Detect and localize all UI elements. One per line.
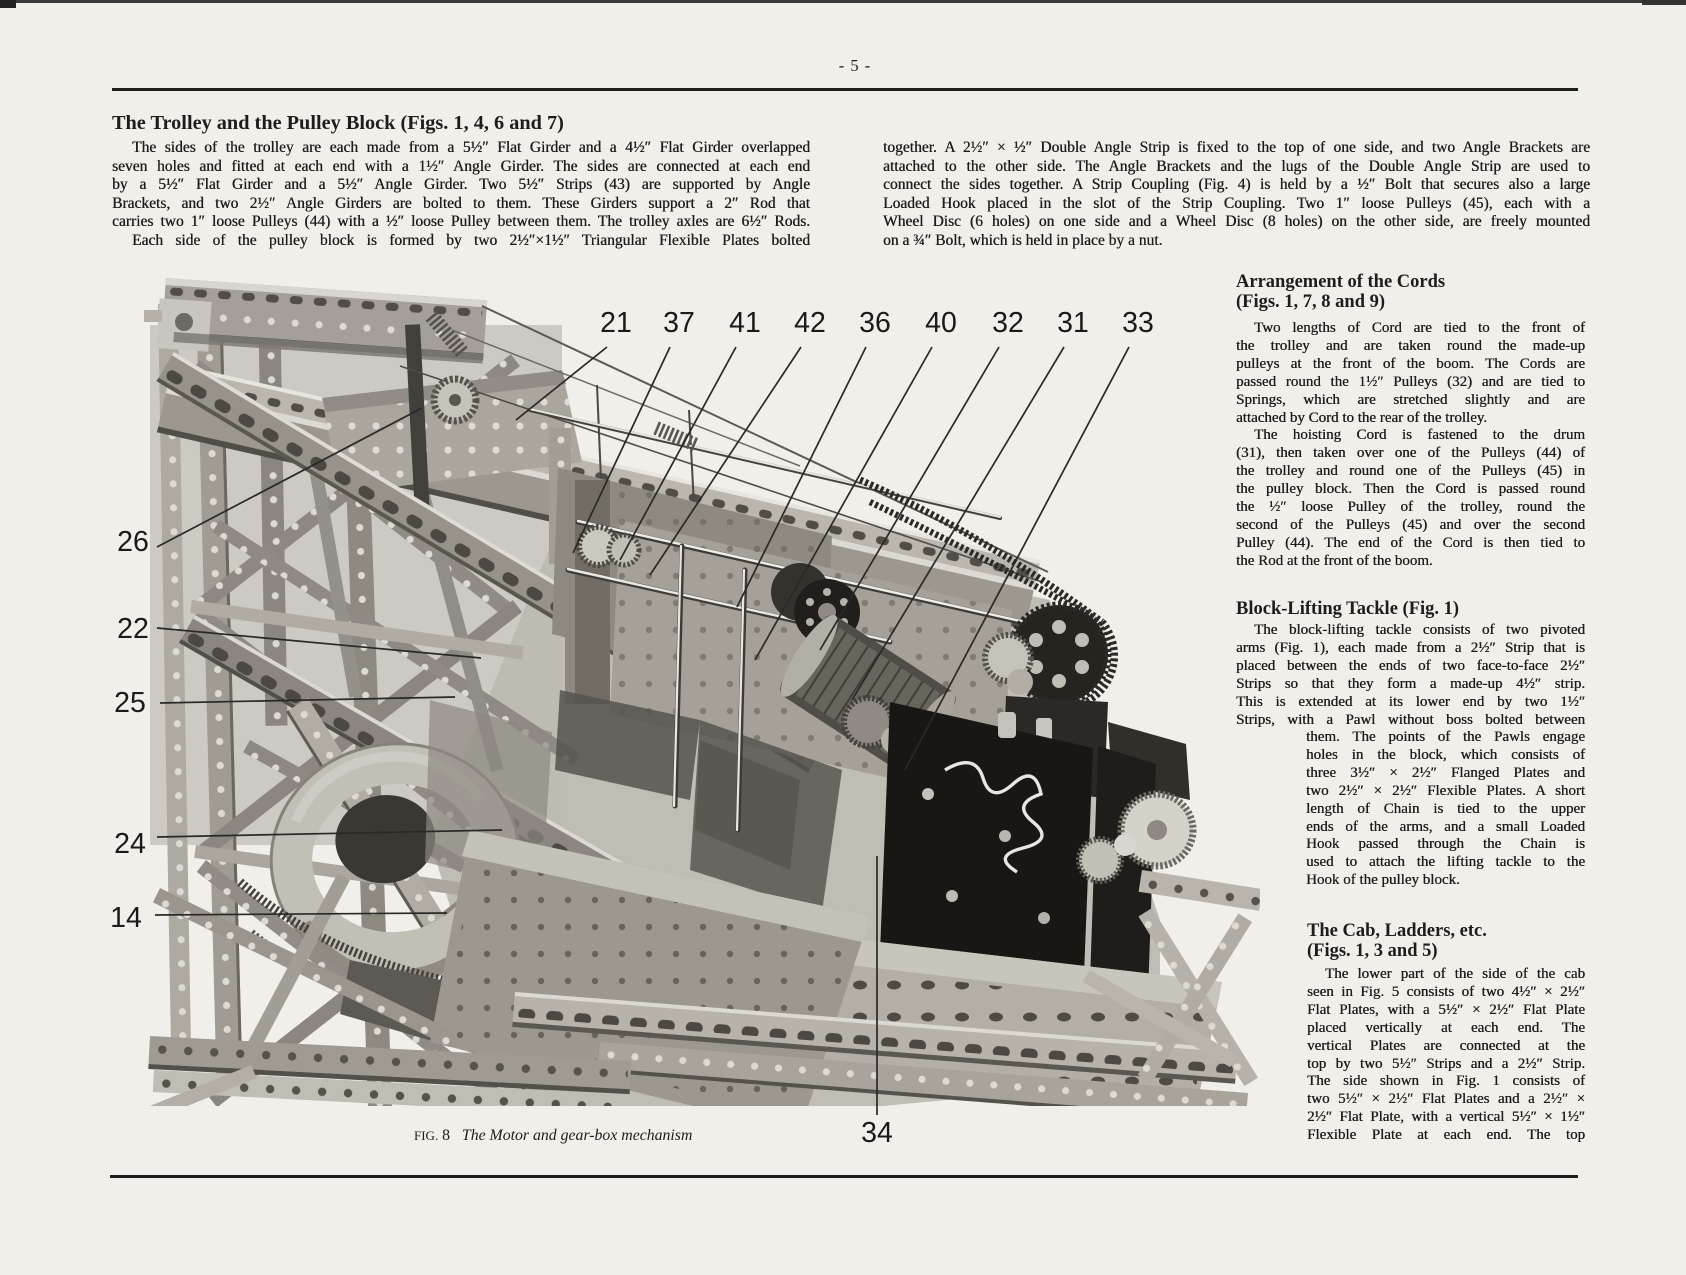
svg-text:42: 42	[794, 307, 826, 339]
svg-text:32: 32	[992, 307, 1024, 339]
svg-text:26: 26	[117, 526, 149, 558]
svg-text:40: 40	[925, 307, 957, 339]
svg-text:21: 21	[600, 307, 632, 339]
svg-text:24: 24	[114, 828, 146, 860]
svg-text:22: 22	[117, 613, 149, 645]
svg-text:33: 33	[1122, 307, 1154, 339]
svg-text:14: 14	[110, 902, 142, 934]
svg-text:37: 37	[663, 307, 695, 339]
svg-text:41: 41	[729, 307, 761, 339]
svg-text:36: 36	[859, 307, 891, 339]
svg-text:25: 25	[114, 687, 146, 719]
svg-text:34: 34	[861, 1117, 893, 1149]
svg-text:31: 31	[1057, 307, 1089, 339]
